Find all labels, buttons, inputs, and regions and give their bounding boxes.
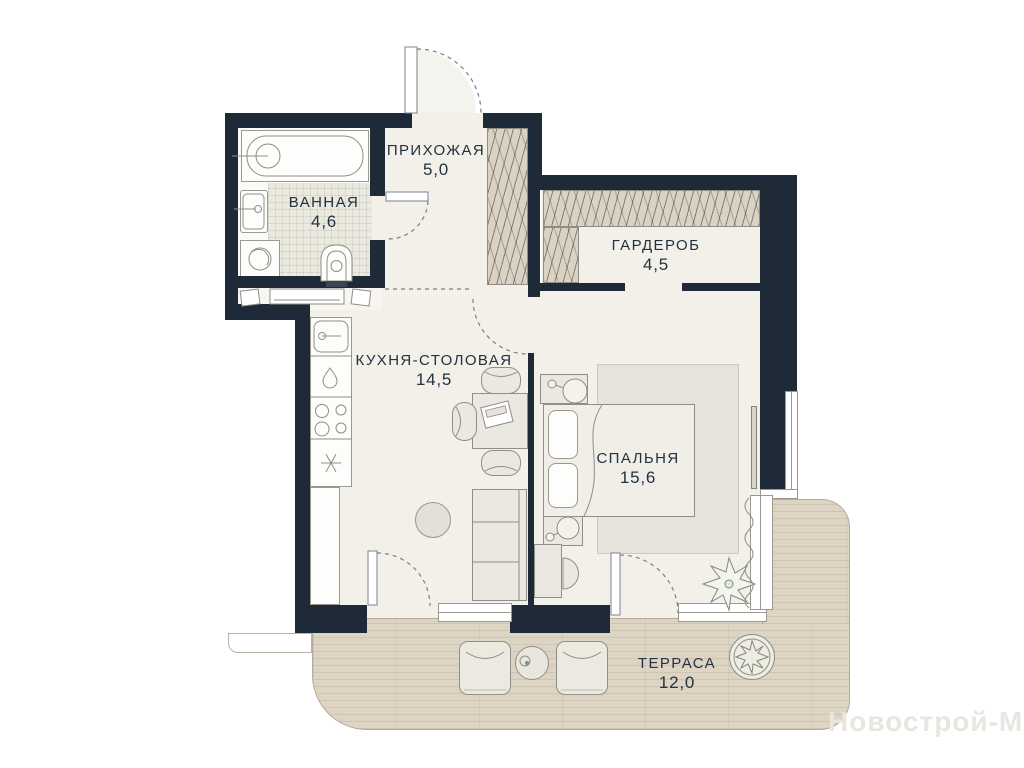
room-area: 12,0 bbox=[638, 673, 716, 693]
exterior-ledge bbox=[228, 633, 312, 653]
room-area: 15,6 bbox=[596, 468, 679, 488]
terrace-plant-pot bbox=[729, 634, 775, 680]
terrace-armchair-left bbox=[459, 641, 511, 695]
door-swing-arc bbox=[417, 49, 481, 113]
wall-tv bbox=[751, 406, 757, 489]
nightstand-top bbox=[540, 374, 588, 404]
washing-machine bbox=[240, 240, 280, 278]
door-leaf bbox=[405, 47, 417, 113]
terrace-side-table bbox=[515, 646, 549, 680]
bathtub bbox=[241, 130, 369, 182]
wall-segment bbox=[528, 190, 540, 297]
room-name: ТЕРРАСА bbox=[638, 655, 716, 672]
bedroom-east-wall-window bbox=[785, 391, 798, 491]
room-label-bathroom: ВАННАЯ 4,6 bbox=[289, 194, 359, 232]
bedroom-desk bbox=[534, 544, 562, 598]
room-label-kitchen-dining: КУХНЯ-СТОЛОВАЯ 14,5 bbox=[356, 352, 513, 390]
room-name: СПАЛЬНЯ bbox=[596, 450, 679, 467]
wall-segment bbox=[528, 283, 625, 291]
dining-chair-bottom bbox=[481, 450, 521, 476]
developer-watermark: Новострой-М bbox=[828, 706, 1023, 738]
wall-segment bbox=[295, 605, 367, 633]
bed-pillow-top bbox=[548, 410, 578, 459]
wall-segment bbox=[510, 605, 610, 633]
room-label-terrace: ТЕРРАСА 12,0 bbox=[638, 655, 716, 693]
wall-segment bbox=[295, 315, 310, 633]
wall-segment bbox=[530, 175, 797, 190]
window-mullion bbox=[679, 612, 766, 613]
wardrobe-closet-top bbox=[543, 190, 760, 227]
bed-pillow-bottom bbox=[548, 463, 578, 508]
room-area: 14,5 bbox=[356, 370, 513, 390]
room-name: ПРИХОЖАЯ bbox=[387, 142, 485, 159]
wardrobe-closet-left bbox=[543, 227, 579, 283]
room-label-bedroom: СПАЛЬНЯ 15,6 bbox=[596, 450, 679, 488]
wall-segment bbox=[225, 113, 238, 320]
entrance-door bbox=[405, 47, 481, 113]
wall-segment bbox=[682, 283, 762, 291]
bathroom-sink bbox=[240, 190, 268, 233]
dining-chair-left bbox=[452, 402, 477, 441]
room-area: 4,5 bbox=[612, 255, 701, 275]
kitchen-terrace-window bbox=[438, 603, 512, 622]
floor-plan: ПРИХОЖАЯ 5,0 ВАННАЯ 4,6 ГАРДЕРОБ 4,5 КУХ… bbox=[0, 0, 1024, 768]
room-area: 5,0 bbox=[387, 160, 485, 180]
wall-segment bbox=[225, 113, 412, 128]
dining-table bbox=[472, 393, 528, 449]
kitchen-counter-upper bbox=[310, 317, 352, 487]
room-name: КУХНЯ-СТОЛОВАЯ bbox=[356, 352, 513, 369]
wall-segment bbox=[370, 240, 385, 280]
terrace-armchair-right bbox=[556, 641, 608, 695]
room-label-wardrobe: ГАРДЕРОБ 4,5 bbox=[612, 237, 701, 275]
room-label-hallway: ПРИХОЖАЯ 5,0 bbox=[387, 142, 485, 180]
room-name: ГАРДЕРОБ bbox=[612, 237, 701, 254]
wall-segment bbox=[528, 353, 534, 607]
wall-segment bbox=[370, 128, 385, 196]
sofa bbox=[472, 489, 527, 601]
window-mullion bbox=[760, 496, 761, 609]
room-name: ВАННАЯ bbox=[289, 194, 359, 211]
kitchen-counter-lower bbox=[310, 487, 340, 605]
window-mullion bbox=[791, 392, 792, 490]
pouf bbox=[415, 502, 451, 538]
window-mullion bbox=[439, 612, 511, 613]
bedroom-side-glazing bbox=[750, 495, 773, 610]
nightstand-bottom bbox=[543, 516, 583, 546]
room-area: 4,6 bbox=[289, 212, 359, 232]
terrace-deck-wing bbox=[762, 499, 850, 624]
door-swing-area bbox=[412, 49, 476, 113]
wall-segment bbox=[228, 276, 385, 288]
hallway-wardrobe-cabinet bbox=[487, 128, 528, 285]
